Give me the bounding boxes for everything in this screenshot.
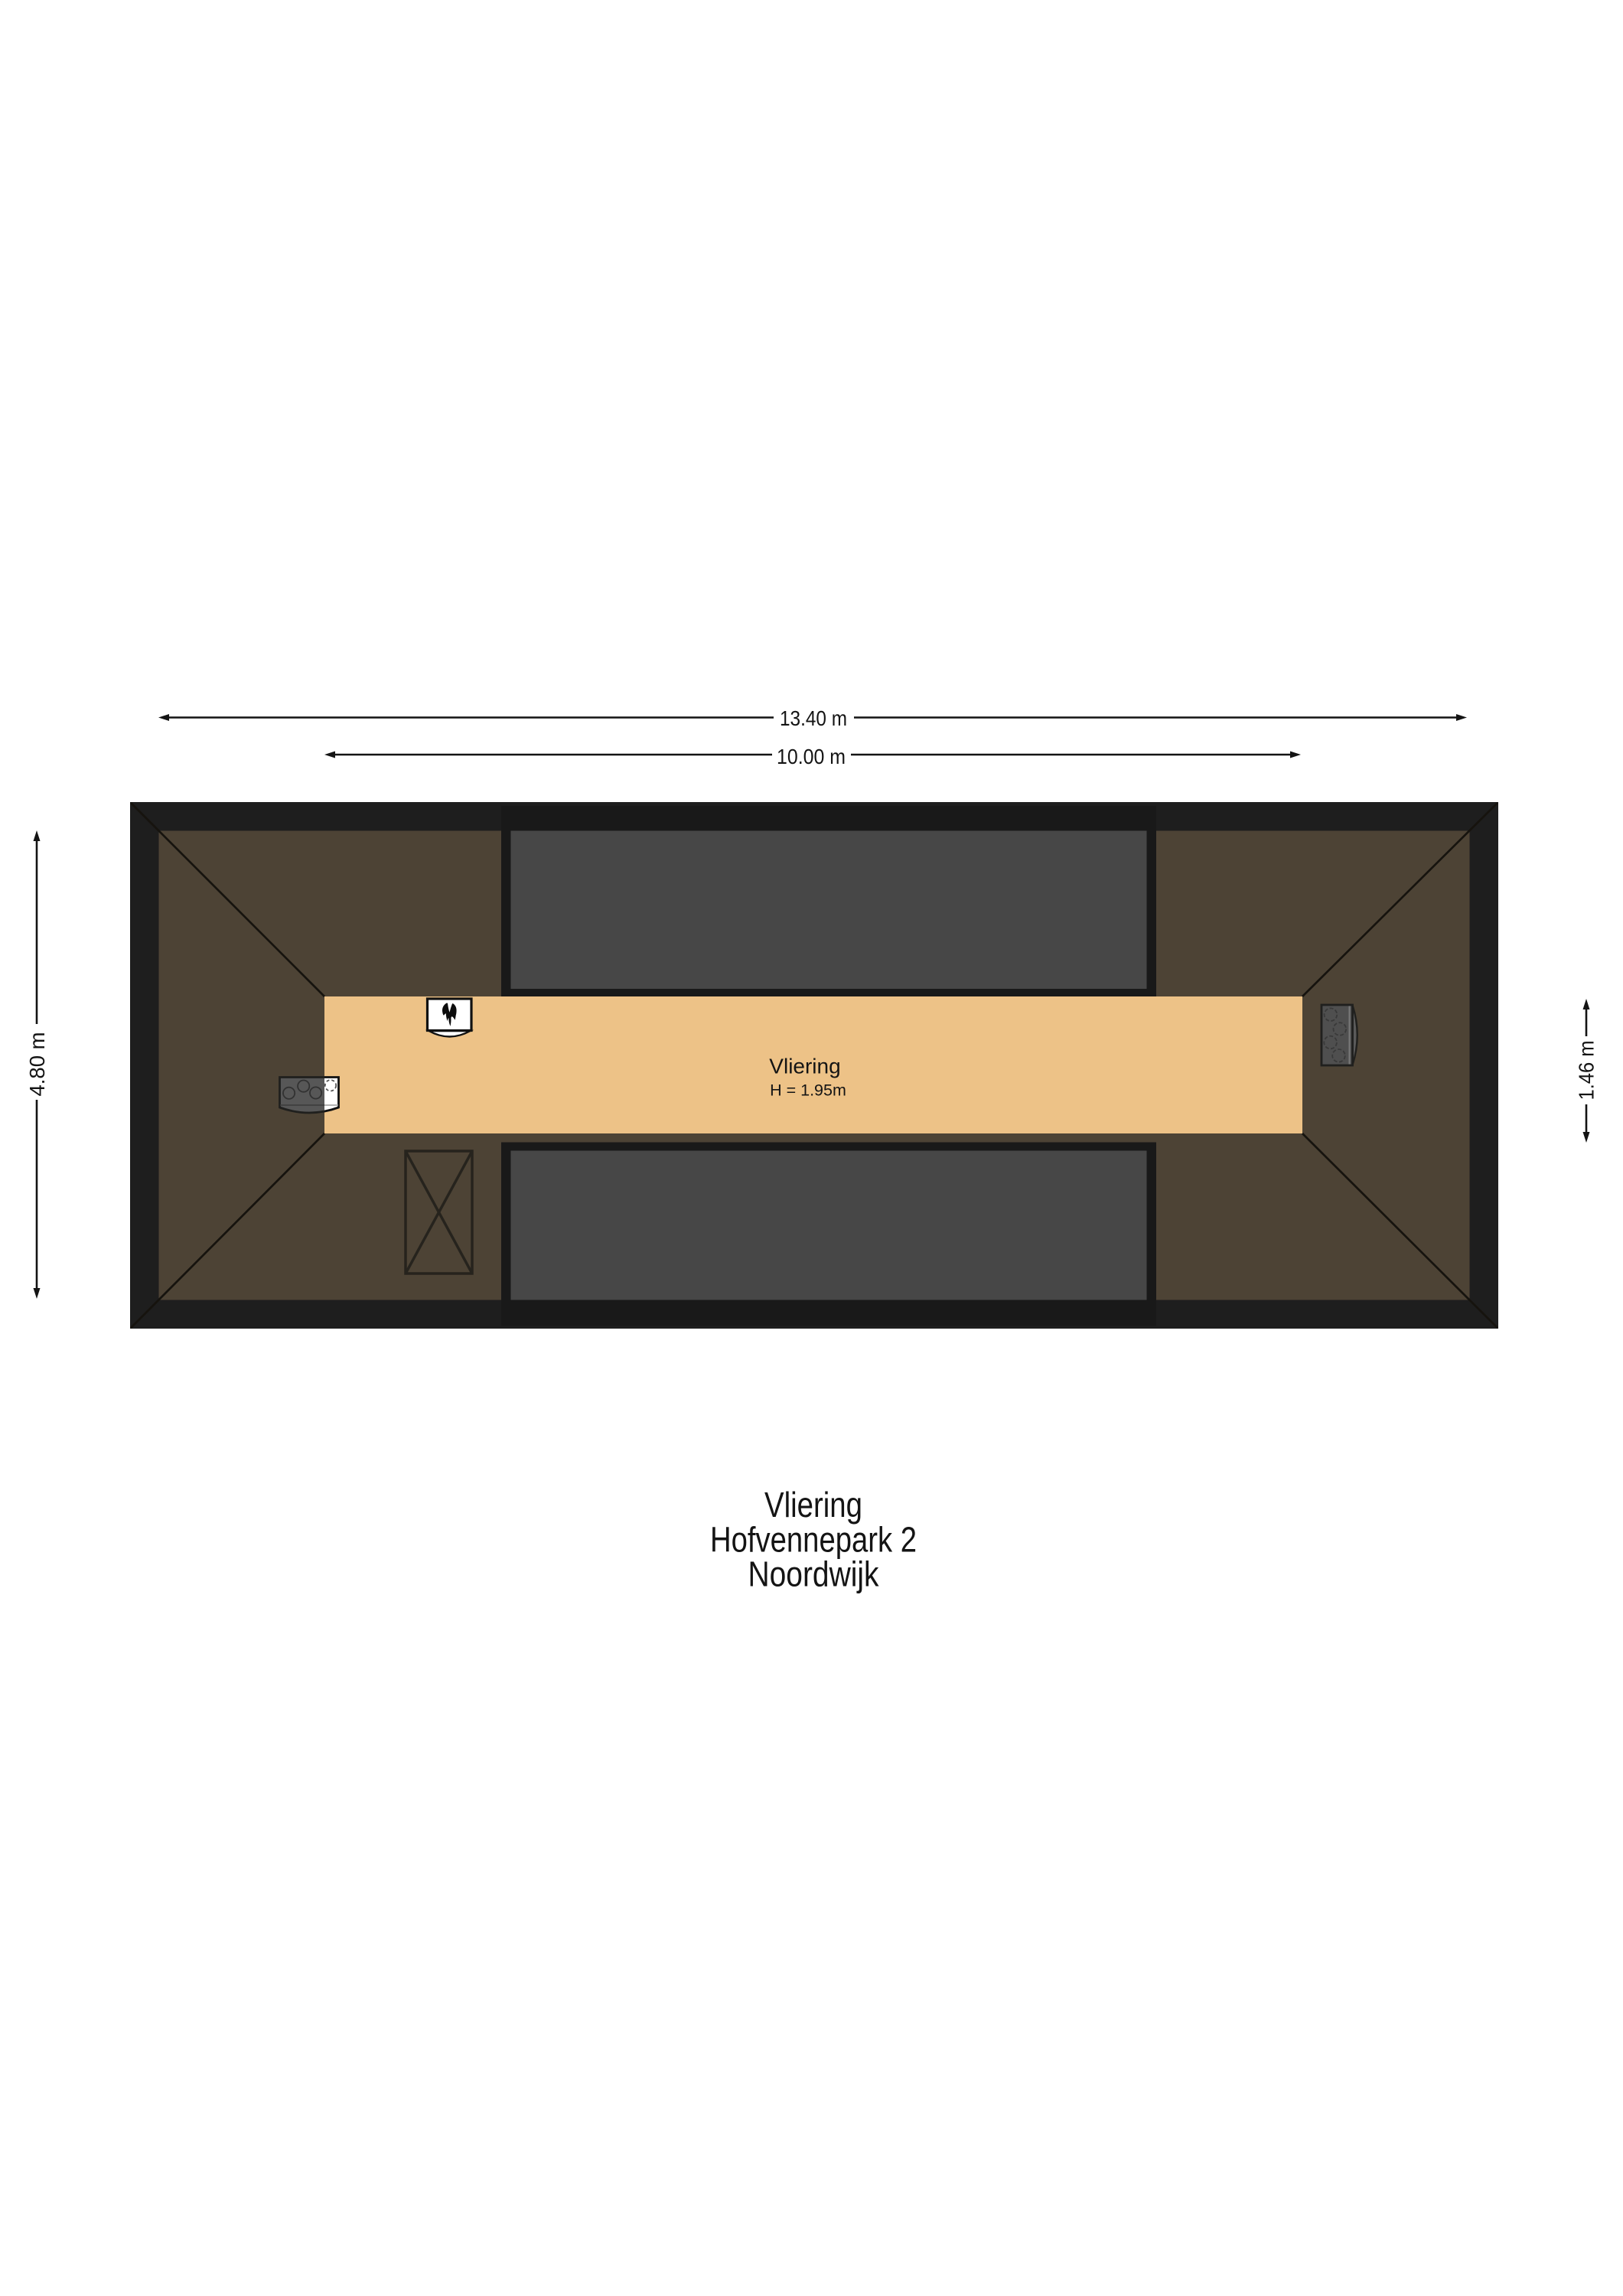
svg-text:13.40 m: 13.40 m <box>780 706 847 730</box>
svg-text:Noordwijk: Noordwijk <box>748 1554 880 1594</box>
svg-text:H = 1.95m: H = 1.95m <box>770 1081 846 1100</box>
svg-text:Vliering: Vliering <box>769 1055 840 1078</box>
svg-text:10.00 m: 10.00 m <box>777 745 846 768</box>
svg-text:4.80 m: 4.80 m <box>25 1032 49 1097</box>
svg-text:Vliering: Vliering <box>764 1485 862 1525</box>
svg-text:1.46 m: 1.46 m <box>1575 1041 1599 1101</box>
